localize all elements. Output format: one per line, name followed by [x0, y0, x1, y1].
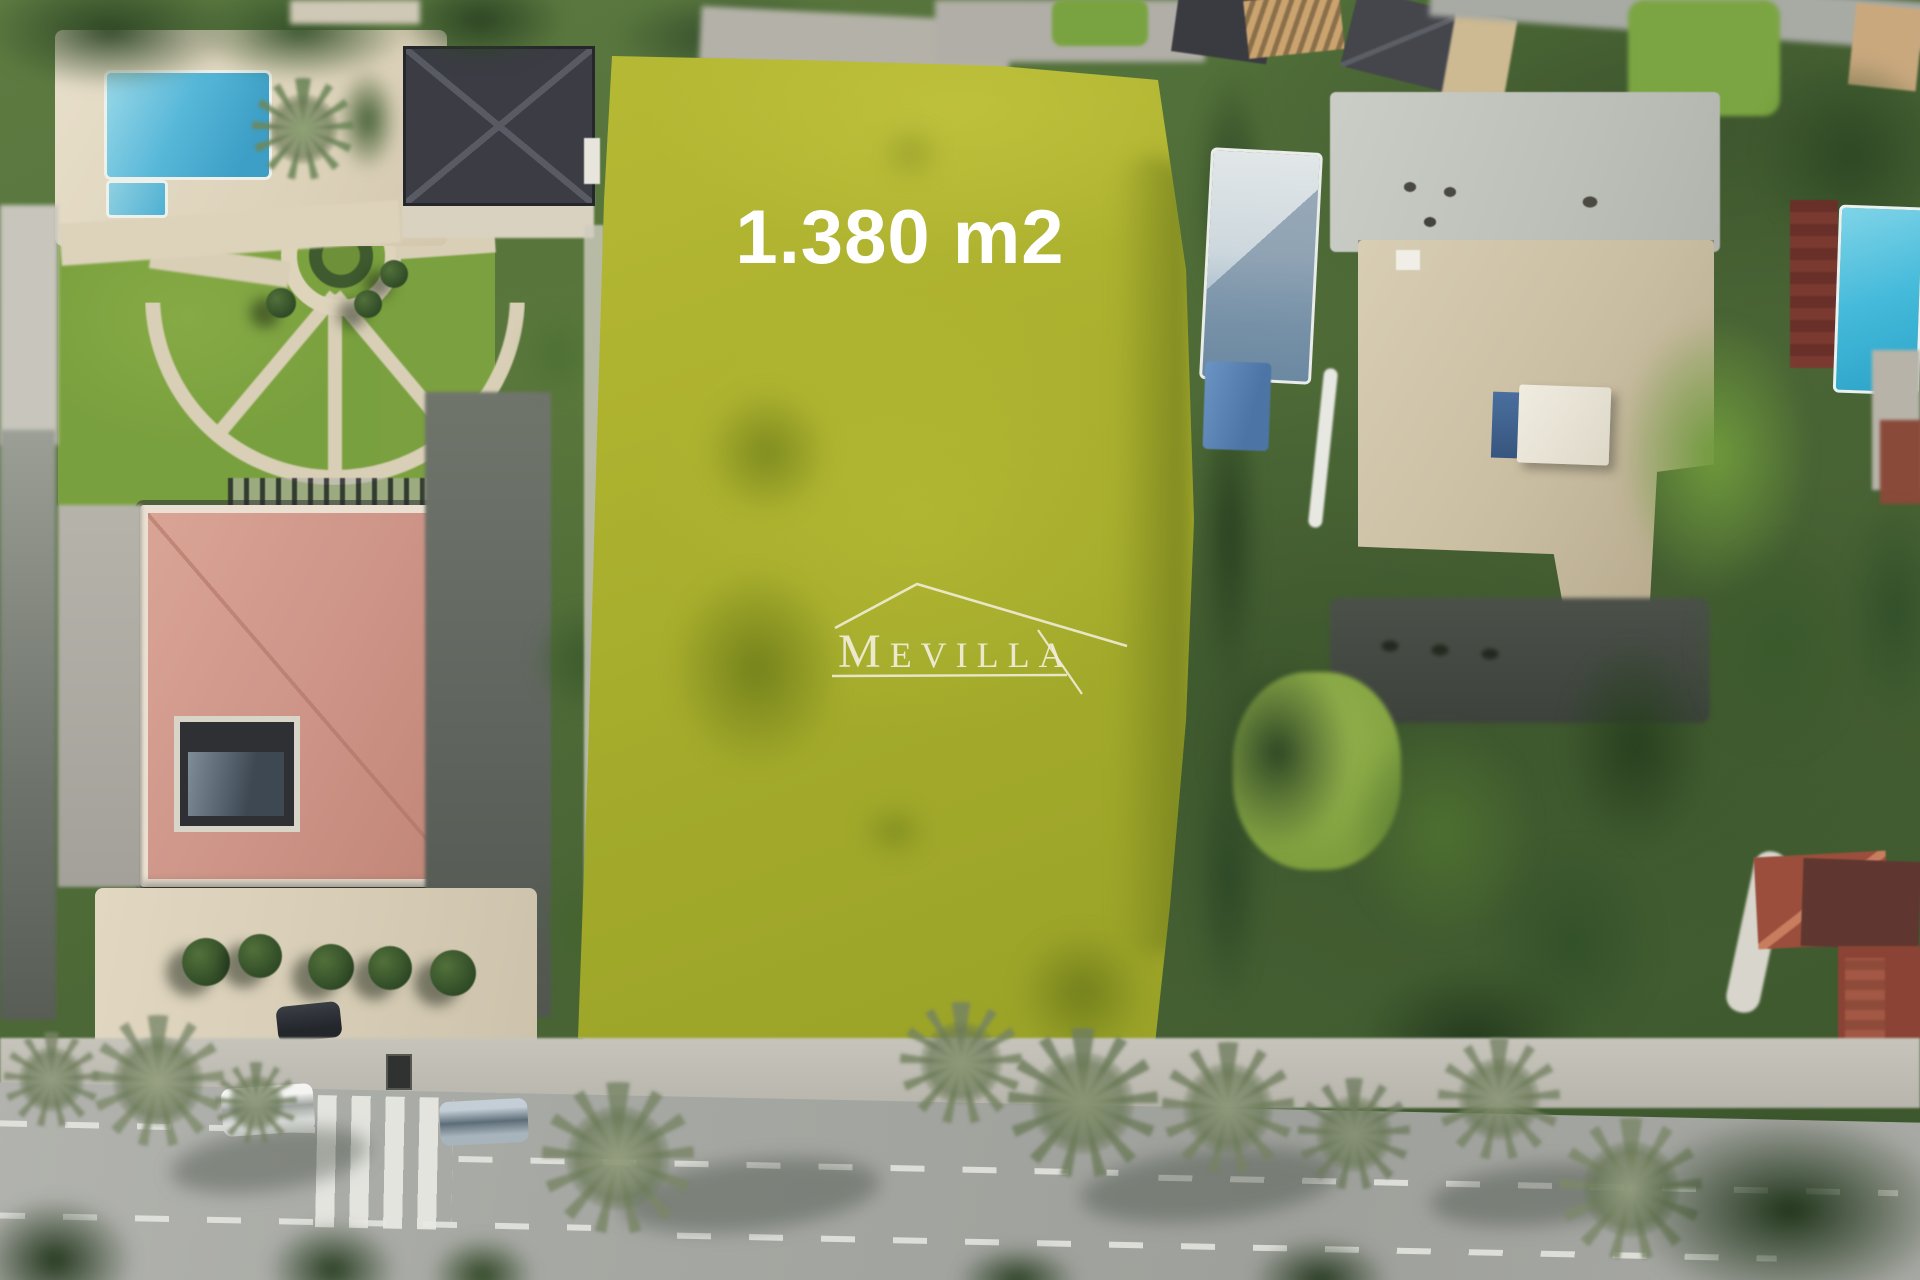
topiary-bush [238, 934, 282, 978]
swimming-pool-step [106, 180, 168, 218]
watermark-rest: EVILLA [890, 634, 1074, 676]
roof-rafters [1243, 0, 1345, 59]
west-walkway [58, 505, 142, 887]
topiary-bush [182, 938, 230, 986]
topiary-bush [380, 260, 408, 288]
plot-area-label: 1.380 m2 [670, 194, 1130, 281]
parked-car-dark [275, 1001, 342, 1043]
watermark-logo: MEVILLA [822, 566, 1142, 766]
swimming-pool-long [1199, 147, 1323, 385]
topiary-bush [308, 944, 354, 990]
roof-terrace [1330, 92, 1720, 252]
utility-box [386, 1054, 412, 1090]
rooftop-box [1517, 384, 1612, 465]
parked-car-blue [439, 1098, 529, 1147]
topiary-bush [368, 946, 412, 990]
skylight-glass [188, 752, 284, 816]
side-drive [0, 430, 56, 1020]
palm-tree [4, 1032, 99, 1127]
palm-tree [1008, 1028, 1158, 1178]
pool-canopy-blue [1202, 361, 1271, 451]
palm-tree [542, 1082, 694, 1234]
tree-canopy [1675, 515, 1880, 780]
tree-shadow-in-plot [688, 373, 846, 531]
topiary-bush [430, 950, 476, 996]
garden-steps-red [1845, 958, 1885, 1040]
highlighted-plot: 1.380 m2 MEVILLA [570, 48, 1202, 1080]
palm-tree [900, 1002, 1022, 1124]
watermark-brand: MEVILLA [838, 624, 1074, 679]
palm-tree [215, 1062, 297, 1144]
tree-shadow-in-plot [852, 796, 937, 866]
roof-maroon [1801, 858, 1920, 950]
garden-post [584, 138, 600, 184]
topiary-bush [354, 290, 382, 318]
palm-tree [252, 78, 354, 180]
satellite-aerial-photo: 1.380 m2 MEVILLA [0, 0, 1920, 1280]
tree-shadow-in-plot [868, 116, 953, 191]
white-garden-wall [1308, 368, 1339, 529]
lawn [1052, 0, 1148, 46]
pergola-slats [228, 478, 456, 506]
rooftop-vent [1396, 250, 1420, 270]
palm-tree [1298, 1078, 1410, 1190]
topiary-bush [266, 288, 296, 318]
palm-tree [1162, 1042, 1294, 1174]
palm-tree [92, 1015, 224, 1147]
garden-path-spoke [328, 295, 342, 481]
palm-tree [1438, 1038, 1560, 1160]
watermark-initial: M [838, 624, 890, 679]
path-patch [290, 0, 420, 24]
solar-panel [1491, 392, 1519, 459]
side-path [0, 205, 58, 445]
